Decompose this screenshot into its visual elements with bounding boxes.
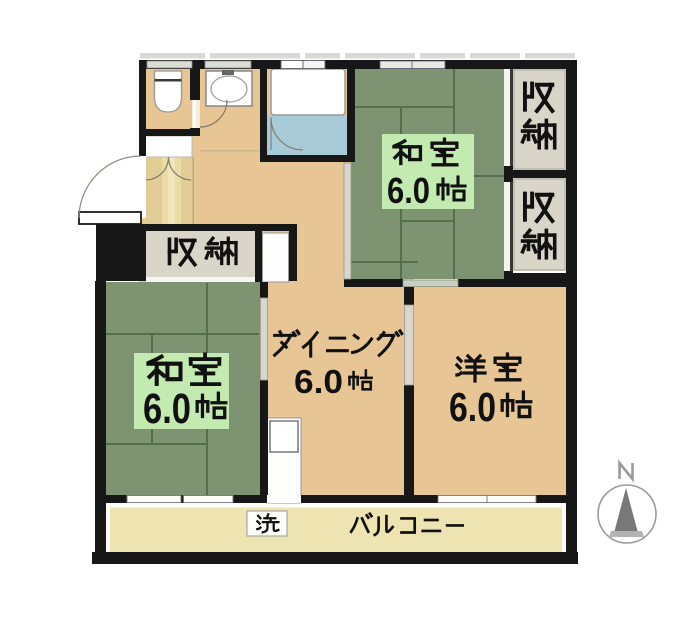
svg-text:6.0: 6.0	[387, 170, 430, 211]
svg-text:6.0: 6.0	[449, 384, 496, 430]
svg-text:6.0: 6.0	[294, 363, 343, 400]
svg-text:6.0: 6.0	[143, 385, 191, 433]
